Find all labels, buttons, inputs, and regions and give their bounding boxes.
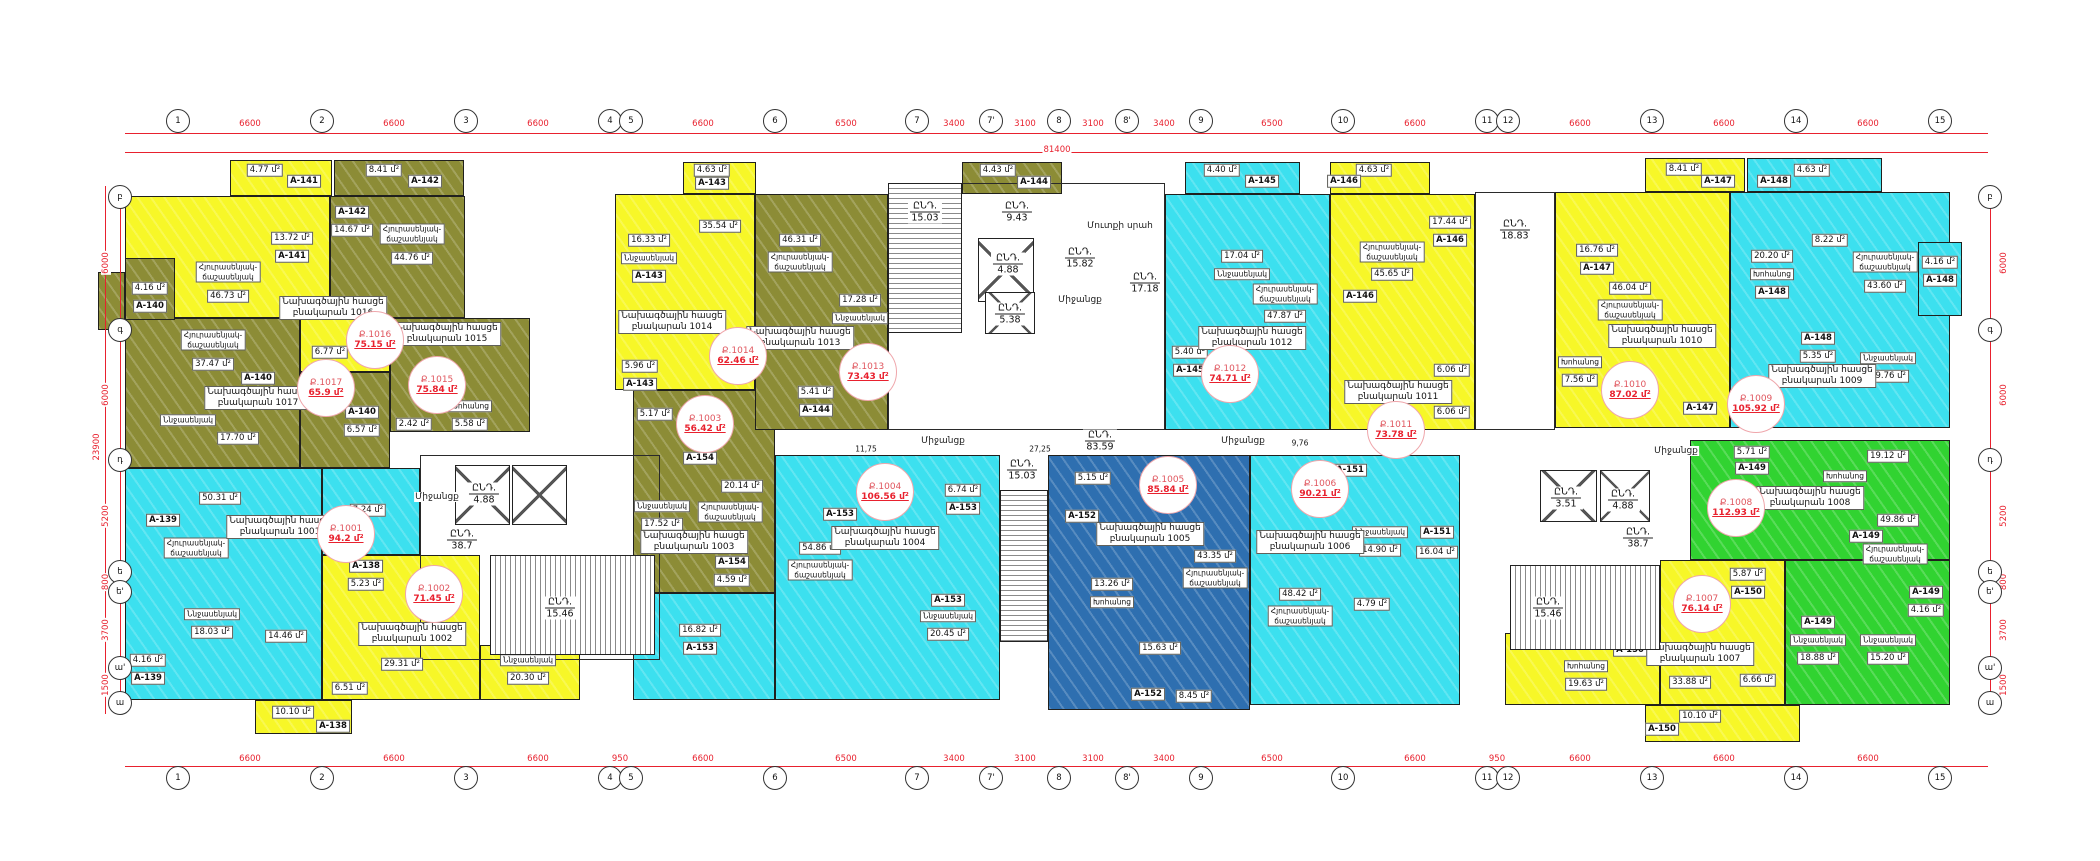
grid-bubble-bottom-10: 10 [1331,766,1355,790]
apartment-1014-badge: Ք.101462.46 մ² [709,327,767,385]
axis-dim-top: 6600 [526,119,550,129]
room-area-label: 4.63 մ² [1356,164,1392,177]
axis-dim-bottom: 3100 [1013,754,1037,764]
core-label-value: 15.46 [1533,609,1563,620]
room-type-label: Խոհանոց [1558,356,1602,368]
apartment-total-area: 90.21 մ² [1299,489,1340,499]
grid-bubble-top-6: 6 [763,109,787,133]
axis-dim-top: 3400 [942,119,966,129]
room-code-label: A-149 [1849,530,1883,543]
core-label-name: ԸՆԴ. [447,529,477,541]
core-label-name: ԸՆԴ. [1623,527,1653,539]
room-code-label: A-142 [408,175,442,188]
grid-bubble-top-8: 8 [1047,109,1071,133]
core-area-label: ԸՆԴ.5.38 [993,303,1027,326]
apartment-total-area: 73.43 մ² [847,372,888,382]
apartment-1008-badge: Ք.1008112.93 մ² [1707,479,1765,537]
room-area-label: 17.44 մ² [1429,216,1471,229]
room-code-label: A-153 [946,502,980,515]
apartment-1009-badge: Ք.1009105.92 մ² [1727,375,1785,433]
grid-bubble-left-դ: դ [108,448,132,472]
core-label-value: 5.38 [995,315,1025,326]
apartment-1012-badge: Ք.101274.71 մ² [1201,345,1259,403]
apartment-1010-badge: Ք.101087.02 մ² [1601,361,1659,419]
grid-bubble-top-7: 7 [905,109,929,133]
grid-bubble-bottom-5: 5 [619,766,643,790]
core-label-name: ԸՆԴ. [469,483,499,495]
room-area-label: 20.14 մ² [721,480,763,493]
room-code-label: A-153 [683,642,717,655]
core-area-label: ԸՆԴ.9.43 [1000,201,1034,224]
room-area-label: 5.17 մ² [637,408,673,421]
room-type-label: Հյուրասենյակ- ճաշասենյակ [768,252,833,273]
core-label-value: 4.88 [1608,501,1638,512]
room-code-label: A-154 [683,452,717,465]
room-area-label: 17.04 մ² [1221,250,1263,263]
apartment-total-area: 74.71 մ² [1209,374,1250,384]
room-code-label: A-144 [799,404,833,417]
room-area-label: 48.42 մ² [1279,588,1321,601]
room-type-label: Ննջասենյակ [1214,268,1270,280]
axis-dim-top: 6600 [691,119,715,129]
apartment-1008-address: Նախագծային հասցե բնակարան 1008 [1756,486,1864,510]
apartment-1015-address: Նախագծային հասցե բնակարան 1015 [393,322,501,346]
core-label-value: 3.51 [1551,499,1581,510]
apartment-1006-badge: Ք.100690.21 մ² [1291,460,1349,518]
room-area-label: 50.31 մ² [199,492,241,505]
apartment-number: Ք.1013 [852,362,885,372]
room-code-label: A-143 [632,270,666,283]
room-area-label: 37.47 մ² [192,358,234,371]
room-area-label: 8.45 մ² [1176,690,1212,703]
room-type-label: Ննջասենյակ [1860,352,1916,364]
grid-bubble-bottom-7': 7' [979,766,1003,790]
apartment-total-area: 112.93 մ² [1712,508,1760,518]
elevator-shaft [512,465,567,525]
core-area-label: ԸՆԴ.38.7 [1621,527,1655,550]
grid-bubble-top-9: 9 [1189,109,1213,133]
room-code-label: A-141 [275,250,309,263]
core-area-label: ԸՆԴ.4.88 [467,483,501,506]
room-area-label: 4.63 մ² [694,164,730,177]
room-area-label: 4.43 մ² [980,164,1016,177]
apartment-number: Ք.1008 [1720,498,1753,508]
grid-bubble-top-2: 2 [310,109,334,133]
axis-total-top: 81400 [1042,145,1071,155]
room-type-label: Ննջասենյակ [500,654,556,666]
room-area-label: 20.20 մ² [1751,250,1793,263]
apartment-1005-address: Նախագծային հասցե բնակարան 1005 [1096,522,1204,546]
room-code-label: A-149 [1735,462,1769,475]
room-type-label: Ննջասենյակ [920,610,976,622]
room-type-label: Խոհանոց [1090,596,1134,608]
axis-dim-top: 6500 [834,119,858,129]
grid-bubble-bottom-1: 1 [166,766,190,790]
grid-bubble-bottom-14: 14 [1784,766,1808,790]
room-area-label: 46.31 մ² [779,234,821,247]
room-area-label: 46.04 մ² [1609,282,1651,295]
room-area-label: 6.57 մ² [344,424,380,437]
axis-dim-top: 3100 [1081,119,1105,129]
grid-bubble-bottom-6: 6 [763,766,787,790]
apartment-1004-badge: Ք.1004106.56 մ² [856,463,914,521]
apartment-1012-block [1185,162,1300,194]
room-area-label: 43.60 մ² [1864,280,1906,293]
axis-dim-bottom: 6600 [238,754,262,764]
axis-dim-top: 6600 [1712,119,1736,129]
apartment-1016-badge: Ք.101675.15 մ² [346,311,404,369]
axis-dim-left: 6000 [101,251,111,275]
stair-area-label: ԸՆԴ.15.46 [1531,597,1565,620]
axis-dim-left: 1500 [101,673,111,697]
wall-dimension: 9,76 [1291,439,1310,448]
apartment-number: Ք.1011 [1380,420,1413,430]
apartment-number: Ք.1010 [1614,380,1647,390]
grid-bubble-bottom-13: 13 [1640,766,1664,790]
apartment-number: Ք.1009 [1740,394,1773,404]
core-label-name: ԸՆԴ. [1608,489,1638,501]
apartment-number: Ք.1005 [1152,475,1185,485]
room-area-label: 6.77 մ² [312,346,348,359]
room-code-label: A-139 [146,514,180,527]
core-area-label: ԸՆԴ.83.59 [1083,430,1117,453]
apartment-1011-badge: Ք.101173.78 մ² [1367,401,1425,459]
room-type-label: Ննջասենյակ [621,252,677,264]
room-area-label: 5.71 մ² [1734,446,1770,459]
axis-line-top [125,133,1988,134]
room-area-label: 6.66 մ² [1740,674,1776,687]
axis-dim-top: 6600 [1403,119,1427,129]
room-type-label: Հյուրասենյակ- ճաշասենյակ [788,560,853,581]
room-type-label: Հյուրասենյակ- ճաշասենյակ [1183,568,1248,589]
axis-dim-bottom: 6500 [1260,754,1284,764]
axis-dim-right: 6000 [1999,383,2009,407]
room-code-label: A-145 [1245,175,1279,188]
core-area-label: ԸՆԴ.38.7 [445,529,479,552]
core-label-name: ԸՆԴ. [1007,459,1037,471]
room-code-label: A-143 [623,378,657,391]
core-label-name: ԸՆԴ. [1002,201,1032,213]
core-label-value: 38.7 [447,541,477,552]
apartment-1014-address: Նախագծային հասցե բնակարան 1014 [618,310,726,334]
room-area-label: 4.16 մ² [130,654,166,667]
room-area-label: 2.42 մ² [396,418,432,431]
grid-bubble-left-գ: գ [108,318,132,342]
room-code-label: A-144 [1017,176,1051,189]
room-code-label: A-149 [1909,586,1943,599]
room-code-label: A-138 [316,720,350,733]
grid-bubble-top-13: 13 [1640,109,1664,133]
room-code-label: A-147 [1580,262,1614,275]
room-area-label: 5.23 մ² [348,578,384,591]
room-area-label: 46.73 մ² [207,290,249,303]
core-area-label: ԸՆԴ.4.88 [1606,489,1640,512]
core-label-name: ԸՆԴ. [545,597,575,609]
apartment-1005-badge: Ք.100585.84 մ² [1139,456,1197,514]
room-type-label: Ննջասենյակ [634,500,690,512]
room-code-label: A-140 [241,372,275,385]
apartment-total-area: 75.84 մ² [416,385,457,395]
core-label-value: 4.88 [993,265,1023,276]
core-label-value: 15.46 [545,609,575,620]
room-area-label: 4.40 մ² [1204,164,1240,177]
apartment-total-area: 87.02 մ² [1609,390,1650,400]
grid-bubble-bottom-9: 9 [1189,766,1213,790]
room-area-label: 5.41 մ² [798,386,834,399]
apartment-total-area: 94.2 մ² [328,534,363,544]
core-area-label: ԸՆԴ.15.82 [1063,247,1097,270]
room-area-label: 4.59 մ² [714,574,750,587]
apartment-1007-badge: Ք.100776.14 մ² [1673,575,1731,633]
apartment-1002-address: Նախագծային հասցե բնակարան 1002 [358,622,466,646]
room-area-label: 16.04 մ² [1416,546,1458,559]
axis-dim-bottom: 3400 [1152,754,1176,764]
room-code-label: A-148 [1923,274,1957,287]
apartment-1003-address: Նախագծային հասցե բնակարան 1003 [640,530,748,554]
core-label-name: ԸՆԴ. [993,253,1023,265]
apartment-number: Ք.1017 [310,378,343,388]
room-area-label: 14.67 մ² [331,224,373,237]
room-type-label: Հյուրասենյակ- ճաշասենյակ [1853,252,1918,273]
grid-bubble-top-10: 10 [1331,109,1355,133]
core-label-value: 15.03 [1007,471,1037,482]
grid-bubble-left-ա: ա [108,691,132,715]
apartment-total-area: 65.9 մ² [308,388,343,398]
core-label-name: ԸՆԴ. [1551,487,1581,499]
apartment-1017-badge: Ք.101765.9 մ² [297,359,355,417]
room-code-label: A-139 [131,672,165,685]
axis-dim-bottom: 6600 [1856,754,1880,764]
core-area-label: ԸՆԴ.3.51 [1549,487,1583,510]
core-label-value: 4.88 [469,495,499,506]
room-type-label: Հյուրասենյակ- ճաշասենյակ [380,224,445,245]
axis-dim-bottom: 6600 [382,754,406,764]
core-label-value: 18.83 [1500,231,1530,242]
apartment-1006-address: Նախագծային հասցե բնակարան 1006 [1256,530,1364,554]
room-area-label: 5.87 մ² [1730,568,1766,581]
grid-bubble-right-գ: գ [1978,318,2002,342]
room-code-label: A-146 [1433,234,1467,247]
room-type-label: Հյուրասենյակ- ճաշասենյակ [181,330,246,351]
room-area-label: 4.63 մ² [1794,164,1830,177]
grid-bubble-bottom-7: 7 [905,766,929,790]
grid-bubble-bottom-8': 8' [1115,766,1139,790]
core-area-label: ԸՆԴ.18.83 [1498,219,1532,242]
core-label-name: ԸՆԴ. [1085,430,1115,442]
corridor-label: Միջանցք [1057,295,1103,305]
apartment-1015-badge: Ք.101575.84 մ² [408,356,466,414]
room-area-label: 8.22 մ² [1812,234,1848,247]
core-label-value: 15.82 [1065,259,1095,270]
core-label-name: ԸՆԴ. [995,303,1025,315]
axis-dim-bottom: 3100 [1081,754,1105,764]
grid-bubble-bottom-8: 8 [1047,766,1071,790]
corridor-label: Միջանցք [414,492,460,502]
grid-bubble-top-5: 5 [619,109,643,133]
axis-dim-bottom: 6600 [526,754,550,764]
apartment-1007-address: Նախագծային հասցե բնակարան 1007 [1646,642,1754,666]
corridor-label: Միջանցք [920,436,966,446]
grid-bubble-top-14: 14 [1784,109,1808,133]
room-area-label: 6.51 մ² [332,682,368,695]
room-code-label: A-148 [1755,286,1789,299]
room-code-label: A-140 [345,406,379,419]
axis-dim-top: 3400 [1152,119,1176,129]
apartment-number: Ք.1001 [330,524,363,534]
grid-bubble-left-բ: բ [108,185,132,209]
apartment-total-area: 73.78 մ² [1375,430,1416,440]
apartment-1017-address: Նախագծային հասցե բնակարան 1017 [204,386,312,410]
room-area-label: 8.41 մ² [366,164,402,177]
apartment-total-area: 76.14 մ² [1681,604,1722,614]
apartment-total-area: 62.46 մ² [717,356,758,366]
room-area-label: 16.33 մ² [628,234,670,247]
room-code-label: A-152 [1065,510,1099,523]
grid-bubble-top-15: 15 [1928,109,1952,133]
room-area-label: 16.82 մ² [679,624,721,637]
room-code-label: A-141 [287,175,321,188]
stair-run [1000,490,1048,642]
core-label-value: 38.7 [1623,539,1653,550]
stair-area-label: ԸՆԴ.15.46 [543,597,577,620]
room-code-label: A-150 [1645,723,1679,736]
grid-bubble-bottom-2: 2 [310,766,334,790]
room-type-label: Հյուրասենյակ- ճաշասենյակ [196,262,261,283]
room-area-label: 17.52 մ² [641,518,683,531]
grid-bubble-top-1: 1 [166,109,190,133]
room-area-label: 10.10 մ² [272,706,314,719]
room-code-label: A-153 [823,508,857,521]
floor-plan-canvas: 12345677'88'9101112131415660066006600950… [0,0,2100,861]
room-code-label: A-146 [1343,290,1377,303]
axis-dim-top: 3100 [1013,119,1037,129]
room-code-label: A-149 [1801,616,1835,629]
apartment-total-area: 85.84 մ² [1147,485,1188,495]
room-code-label: A-146 [1327,175,1361,188]
room-area-label: 6.74 մ² [945,484,981,497]
room-area-label: 19.12 մ² [1867,450,1909,463]
apartment-1009-address: Նախագծային հասցե բնակարան 1009 [1768,364,1876,388]
core-label-name: ԸՆԴ. [1065,247,1095,259]
room-area-label: 14.46 մ² [265,630,307,643]
room-type-label: Խոհանոց [1823,470,1867,482]
room-area-label: 49.86 մ² [1877,514,1919,527]
room-type-label: Ննջասենյակ [1790,634,1846,646]
apartment-total-area: 106.56 մ² [861,492,909,502]
room-type-label: Հյուրասենյակ- ճաշասենյակ [1598,300,1663,321]
corridor-label: Մուտքի սրահ [1086,221,1154,231]
apartment-1004-address: Նախագծային հասցե բնակարան 1004 [831,526,939,550]
axis-dim-bottom: 6600 [1712,754,1736,764]
apartment-1003-badge: Ք.100356.42 մ² [676,395,734,453]
apartment-number: Ք.1016 [359,330,392,340]
room-area-label: 10.10 մ² [1679,710,1721,723]
room-code-label: A-153 [931,594,965,607]
axis-dim-bottom: 3400 [942,754,966,764]
grid-bubble-top-3: 3 [454,109,478,133]
room-type-label: Խոհանոց [1750,268,1794,280]
core-area-label: ԸՆԴ.4.88 [991,253,1025,276]
room-area-label: 47.87 մ² [1264,310,1306,323]
core-area-label: ԸՆԴ.17.18 [1128,272,1162,295]
axis-total-left: 23900 [92,432,102,461]
room-area-label: 45.65 մ² [1371,268,1413,281]
apartment-1001-badge: Ք.100194.2 մ² [317,505,375,563]
axis-dim-bottom: 6600 [1403,754,1427,764]
room-type-label: Ննջասենյակ [1860,634,1916,646]
room-code-label: A-140 [133,300,167,313]
room-area-label: 13.26 մ² [1091,578,1133,591]
grid-bubble-bottom-12: 12 [1496,766,1520,790]
room-area-label: 20.30 մ² [507,672,549,685]
apartment-1008-block [1785,560,1950,705]
axis-dim-bottom: 6500 [834,754,858,764]
apartment-total-area: 105.92 մ² [1732,404,1780,414]
room-code-label: A-142 [335,206,369,219]
axis-dim-right: 3700 [1999,618,2009,642]
axis-dim-top: 6600 [238,119,262,129]
apartment-number: Ք.1007 [1686,594,1719,604]
room-area-label: 5.15 մ² [1075,472,1111,485]
room-type-label: Հյուրասենյակ- ճաշասենյակ [1863,544,1928,565]
grid-bubble-bottom-15: 15 [1928,766,1952,790]
axis-dim-top: 6600 [1568,119,1592,129]
room-area-label: 4.79 մ² [1354,598,1390,611]
core-label-name: ԸՆԴ. [1130,272,1160,284]
room-type-label: Հյուրասենյակ- ճաշասենյակ [164,538,229,559]
room-area-label: 18.03 մ² [191,626,233,639]
room-area-label: 5.35 մ² [1800,350,1836,363]
grid-bubble-top-12: 12 [1496,109,1520,133]
room-type-label: Խոհանոց [1564,660,1608,672]
axis-dim-left: 3700 [101,618,111,642]
room-area-label: 4.16 մ² [1922,256,1958,269]
core-label-value: 9.43 [1002,213,1032,224]
apartment-number: Ք.1015 [421,375,454,385]
room-area-label: 6.06 մ² [1434,406,1470,419]
corridor-label: Միջանցք [1220,436,1266,446]
room-type-label: Հյուրասենյակ- ճաշասենյակ [1253,284,1318,305]
room-code-label: A-150 [1731,586,1765,599]
room-area-label: 13.72 մ² [271,232,313,245]
apartment-1010-address: Նախագծային հասցե բնակարան 1010 [1608,324,1716,348]
room-area-label: 4.16 մ² [132,282,168,295]
axis-dim-bottom: 6600 [1568,754,1592,764]
corridor-label: Միջանցք [1653,446,1699,456]
room-area-label: 15.20 մ² [1867,652,1909,665]
axis-dim-left: 5200 [101,504,111,528]
axis-dim-right: 5200 [1999,504,2009,528]
apartment-number: Ք.1014 [722,346,755,356]
apartment-number: Ք.1012 [1214,364,1247,374]
apartment-1002-badge: Ք.100271.45 մ² [405,565,463,623]
core-label-name: ԸՆԴ. [1533,597,1563,609]
wall-dimension: 27,25 [1028,445,1051,454]
room-code-label: A-148 [1757,175,1791,188]
apartment-number: Ք.1002 [418,584,451,594]
room-code-label: A-143 [695,177,729,190]
stair-area-label: ԸՆԴ.15.03 [908,201,942,224]
room-area-label: 18.88 մ² [1797,652,1839,665]
grid-bubble-left-ե': ե' [108,580,132,604]
apartment-1013-badge: Ք.101373.43 մ² [839,343,897,401]
room-area-label: 44.76 մ² [391,252,433,265]
room-area-label: 7.56 մ² [1562,374,1598,387]
room-area-label: 14.90 մ² [1359,544,1401,557]
apartment-total-area: 56.42 մ² [684,424,725,434]
room-code-label: A-147 [1701,175,1735,188]
room-type-label: Ննջասենյակ [160,414,216,426]
